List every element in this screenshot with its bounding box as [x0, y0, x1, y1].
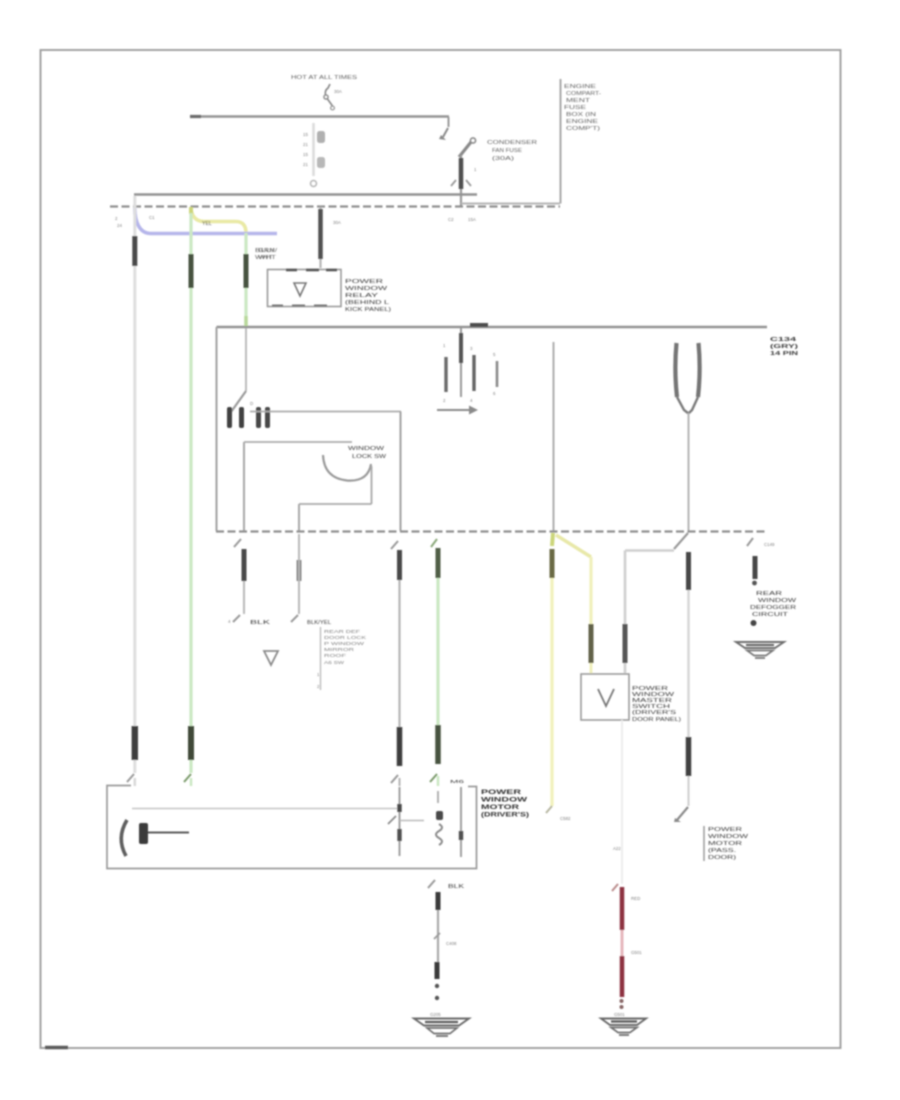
svg-text:DOOR): DOOR) [708, 855, 736, 861]
svg-text:(DRIVER'S: (DRIVER'S [632, 710, 677, 716]
svg-text:BOX (IN: BOX (IN [566, 112, 597, 118]
svg-text:COMPART-: COMPART- [566, 91, 601, 97]
svg-text:COMP'T): COMP'T) [566, 126, 601, 132]
svg-text:FUSE: FUSE [564, 105, 587, 111]
svg-text:(BEHIND L: (BEHIND L [345, 300, 389, 306]
svg-text:DOOR PANEL): DOOR PANEL) [632, 717, 681, 723]
svg-text:(30A): (30A) [492, 156, 515, 162]
svg-text:A22: A22 [613, 846, 621, 851]
svg-text:30A: 30A [333, 220, 341, 225]
svg-text:21: 21 [303, 142, 308, 147]
svg-text:ROOF: ROOF [324, 653, 347, 658]
svg-text:CONDENSER: CONDENSER [487, 140, 538, 146]
svg-text:30A: 30A [334, 89, 342, 94]
svg-text:ENGINE: ENGINE [564, 84, 597, 90]
svg-text:WINDOW: WINDOW [481, 798, 528, 804]
svg-text:DEFOGGER: DEFOGGER [750, 605, 796, 611]
svg-text:CIRCUIT: CIRCUIT [752, 612, 789, 618]
svg-text:WINDOW: WINDOW [348, 446, 384, 452]
svg-text:MENT: MENT [566, 98, 590, 104]
svg-text:P WINDOW: P WINDOW [324, 641, 365, 646]
svg-text:YEL: YEL [202, 221, 212, 227]
svg-text:C2: C2 [448, 217, 454, 222]
svg-text:MIRROR: MIRROR [324, 647, 354, 652]
svg-text:KICK PANEL): KICK PANEL) [345, 307, 391, 313]
svg-text:14 PIN: 14 PIN [770, 351, 798, 357]
svg-text:FAN FUSE: FAN FUSE [492, 148, 523, 154]
svg-text:REAR DEF: REAR DEF [324, 629, 361, 634]
svg-text:D: D [250, 401, 253, 406]
svg-text:(DRIVER'S): (DRIVER'S) [481, 813, 529, 819]
svg-text:POWER: POWER [481, 790, 522, 796]
svg-text:15A: 15A [468, 217, 476, 222]
svg-text:LOCK SW: LOCK SW [352, 454, 386, 460]
svg-text:BLK: BLK [250, 620, 271, 626]
svg-text:GRN/: GRN/ [258, 248, 278, 254]
svg-text:A6 SW: A6 SW [324, 660, 345, 665]
svg-text:MOTOR: MOTOR [481, 805, 520, 811]
svg-text:M6: M6 [450, 779, 465, 785]
svg-text:C582: C582 [560, 816, 571, 821]
svg-text:RED: RED [631, 896, 640, 901]
svg-text:G501: G501 [614, 1012, 625, 1017]
svg-text:G501: G501 [631, 950, 642, 955]
svg-text:WHT: WHT [258, 255, 276, 261]
svg-text:MOTOR: MOTOR [708, 841, 742, 847]
svg-text:24: 24 [117, 223, 122, 228]
svg-text:G205: G205 [430, 1012, 441, 1017]
svg-text:ENGINE: ENGINE [566, 119, 599, 125]
svg-text:BLK: BLK [448, 884, 465, 890]
svg-text:15: 15 [303, 152, 308, 157]
svg-text:C134: C134 [770, 337, 796, 343]
svg-text:C1: C1 [149, 215, 155, 220]
svg-text:(PASS.: (PASS. [708, 848, 736, 854]
svg-text:WINDOW: WINDOW [708, 834, 748, 840]
svg-text:POWER: POWER [708, 827, 742, 833]
svg-text:15: 15 [303, 132, 308, 137]
svg-text:21: 21 [303, 162, 308, 167]
svg-text:C149: C149 [764, 542, 775, 547]
svg-text:WINDOW: WINDOW [345, 286, 387, 292]
svg-text:RELAY: RELAY [345, 293, 379, 299]
svg-text:C408: C408 [446, 941, 457, 946]
svg-text:BLK/YEL: BLK/YEL [307, 620, 331, 626]
svg-text:HOT AT ALL TIMES: HOT AT ALL TIMES [291, 75, 358, 81]
svg-text:DOOR LOCK: DOOR LOCK [324, 635, 366, 640]
svg-text:POWER: POWER [345, 279, 383, 285]
svg-text:REAR: REAR [756, 591, 782, 597]
svg-text:WINDOW: WINDOW [758, 598, 796, 604]
svg-text:(GRY): (GRY) [770, 344, 799, 350]
